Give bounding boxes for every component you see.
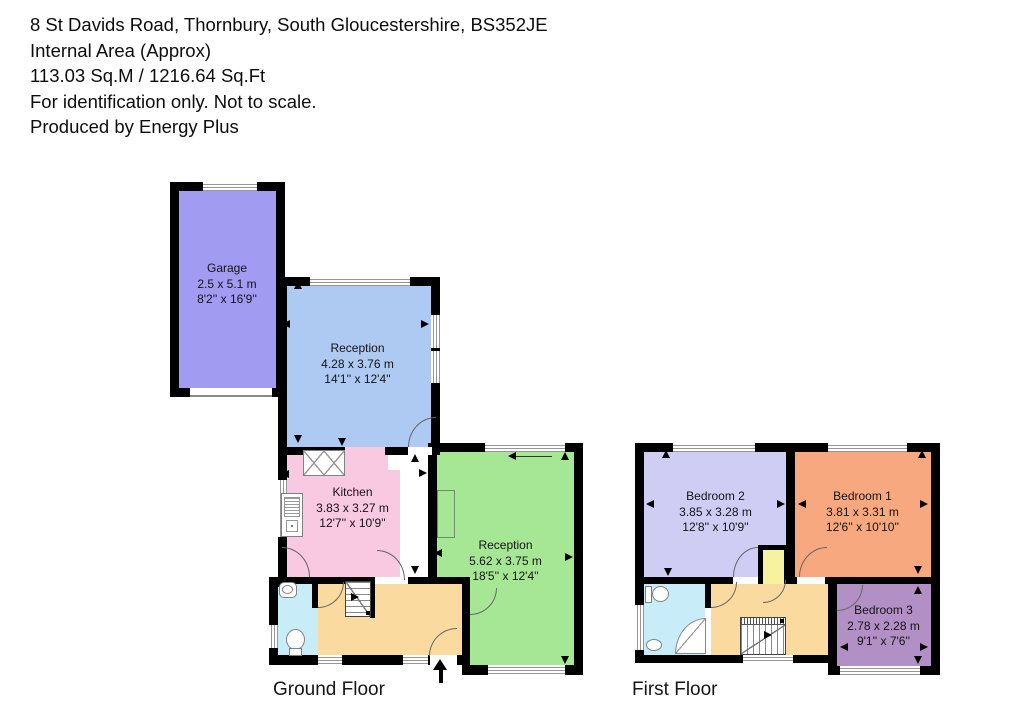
- dimension-arrow: [281, 470, 289, 478]
- counter-unit: [324, 451, 344, 475]
- room-size-metric: 2.5 x 5.1 m: [172, 277, 282, 293]
- window: [431, 315, 440, 348]
- window: [635, 605, 644, 650]
- toilet: [652, 586, 669, 602]
- room-size-metric: 3.83 x 3.27 m: [295, 501, 410, 517]
- toilet-cistern: [289, 648, 302, 656]
- dimension-arrow: [918, 450, 926, 458]
- dimension-arrow: [434, 549, 442, 557]
- room-size-metric: 2.78 x 2.28 m: [826, 619, 941, 635]
- stairs-direction-arrow: [764, 631, 772, 639]
- room-name: Bedroom 2: [658, 489, 773, 505]
- window: [840, 666, 920, 675]
- dimension-arrow: [920, 500, 928, 508]
- dimension-arrow: [508, 452, 516, 460]
- dimension-arrow: [411, 566, 419, 574]
- dimension-arrow: [664, 568, 672, 576]
- toilet: [286, 629, 305, 650]
- room-size-imperial: 12'6'' x 10'10'': [805, 520, 920, 536]
- stair-void-opening: [743, 655, 793, 663]
- floorplan-page: 8 St Davids Road, Thornbury, South Glouc…: [0, 0, 1020, 721]
- entrance-arrow: [433, 659, 447, 670]
- window: [318, 655, 342, 665]
- plan-header: 8 St Davids Road, Thornbury, South Glouc…: [30, 12, 548, 140]
- dimension-arrow: [421, 320, 429, 328]
- basin-bowl: [282, 585, 293, 594]
- room-size-imperial: 9'1'' x 7'6'': [826, 634, 941, 650]
- window: [403, 655, 428, 665]
- room-size-imperial: 14'1'' x 12'4'': [300, 372, 415, 388]
- header-producer: Produced by Energy Plus: [30, 114, 548, 140]
- header-area-value: 113.03 Sq.M / 1216.64 Sq.Ft: [30, 63, 548, 89]
- wall: [269, 578, 278, 665]
- dimension-arrow: [338, 438, 346, 446]
- ground-floor-label: Ground Floor: [273, 679, 385, 701]
- dimension-arrow: [565, 553, 573, 561]
- dimension-arrow: [662, 450, 670, 458]
- stairs-hatch: [741, 618, 785, 625]
- room-label-bedroom2: Bedroom 2 3.85 x 3.28 m 12'8'' x 10'9'': [658, 489, 773, 536]
- window: [203, 182, 257, 191]
- wall: [462, 580, 470, 670]
- wc-basin: [279, 582, 297, 598]
- room-name: Kitchen: [295, 485, 410, 501]
- stairs-direction-arrow: [351, 593, 359, 601]
- room-size-metric: 3.85 x 3.28 m: [658, 505, 773, 521]
- dimension-line: [516, 456, 552, 457]
- window: [269, 625, 278, 648]
- room-label-reception-rear: Reception 5.62 x 3.75 m 18'5'' x 12'4'': [448, 538, 563, 585]
- wall: [428, 443, 437, 584]
- dimension-arrow: [561, 452, 569, 460]
- room-size-metric: 5.62 x 3.75 m: [448, 554, 563, 570]
- dimension-arrow: [561, 656, 569, 664]
- fireplace-outline: [437, 490, 455, 538]
- dimension-arrow: [914, 586, 922, 594]
- dimension-arrow: [294, 435, 302, 443]
- stairs-treads: [741, 625, 785, 654]
- room-size-imperial: 18'5'' x 12'4'': [448, 569, 563, 585]
- wall: [574, 443, 583, 675]
- room-label-reception-front: Reception 4.28 x 3.76 m 14'1'' x 12'4'': [300, 341, 415, 388]
- window: [828, 443, 907, 452]
- room-size-imperial: 12'7'' x 10'9'': [295, 516, 410, 532]
- dimension-arrow: [294, 281, 302, 289]
- room-name: Reception: [300, 341, 415, 357]
- dimension-arrow: [646, 500, 654, 508]
- stairs-dot: [366, 611, 370, 615]
- dimension-arrow: [914, 656, 922, 664]
- room-size-imperial: 12'8'' x 10'9'': [658, 520, 773, 536]
- door-opening: [797, 577, 825, 584]
- garage-door-opening: [190, 388, 272, 397]
- header-address: 8 St Davids Road, Thornbury, South Glouc…: [30, 12, 548, 38]
- dimension-arrow: [777, 500, 785, 508]
- room-size-metric: 4.28 x 3.76 m: [300, 357, 415, 373]
- room-name: Garage: [172, 261, 282, 277]
- room-size-imperial: 8'2'' x 16'9'': [172, 292, 282, 308]
- toilet-cistern: [645, 586, 652, 603]
- bathroom-basin: [646, 639, 662, 651]
- wall: [635, 655, 835, 663]
- counter-unit: [304, 451, 324, 475]
- room-size-metric: 3.81 x 3.31 m: [805, 505, 920, 521]
- kitchen-counter: [303, 450, 345, 476]
- wall: [635, 577, 940, 584]
- wall: [784, 545, 789, 578]
- room-label-kitchen: Kitchen 3.83 x 3.27 m 12'7'' x 10'9'': [295, 485, 410, 532]
- sink-drain: [291, 525, 293, 527]
- dimension-arrow: [411, 454, 419, 462]
- window: [488, 665, 565, 675]
- room-cupboard: [763, 550, 784, 584]
- window: [673, 443, 755, 452]
- stairs-dot: [780, 619, 784, 623]
- first-floor-label: First Floor: [632, 679, 718, 701]
- room-name: Reception: [448, 538, 563, 554]
- room-label-garage: Garage 2.5 x 5.1 m 8'2'' x 16'9'': [172, 261, 282, 308]
- room-label-bedroom1: Bedroom 1 3.81 x 3.31 m 12'6'' x 10'10'': [805, 489, 920, 536]
- header-disclaimer: For identification only. Not to scale.: [30, 89, 548, 115]
- header-area-label: Internal Area (Approx): [30, 38, 548, 64]
- dimension-arrow: [419, 469, 427, 477]
- room-name: Bedroom 1: [805, 489, 920, 505]
- window: [431, 351, 440, 383]
- room-label-bedroom3: Bedroom 3 2.78 x 2.28 m 9'1'' x 7'6'': [826, 603, 941, 650]
- dimension-arrow: [914, 566, 922, 574]
- dimension-arrow: [282, 320, 290, 328]
- window: [485, 443, 565, 452]
- window: [310, 277, 410, 286]
- entrance-arrow-stem: [439, 670, 443, 683]
- room-name: Bedroom 3: [826, 603, 941, 619]
